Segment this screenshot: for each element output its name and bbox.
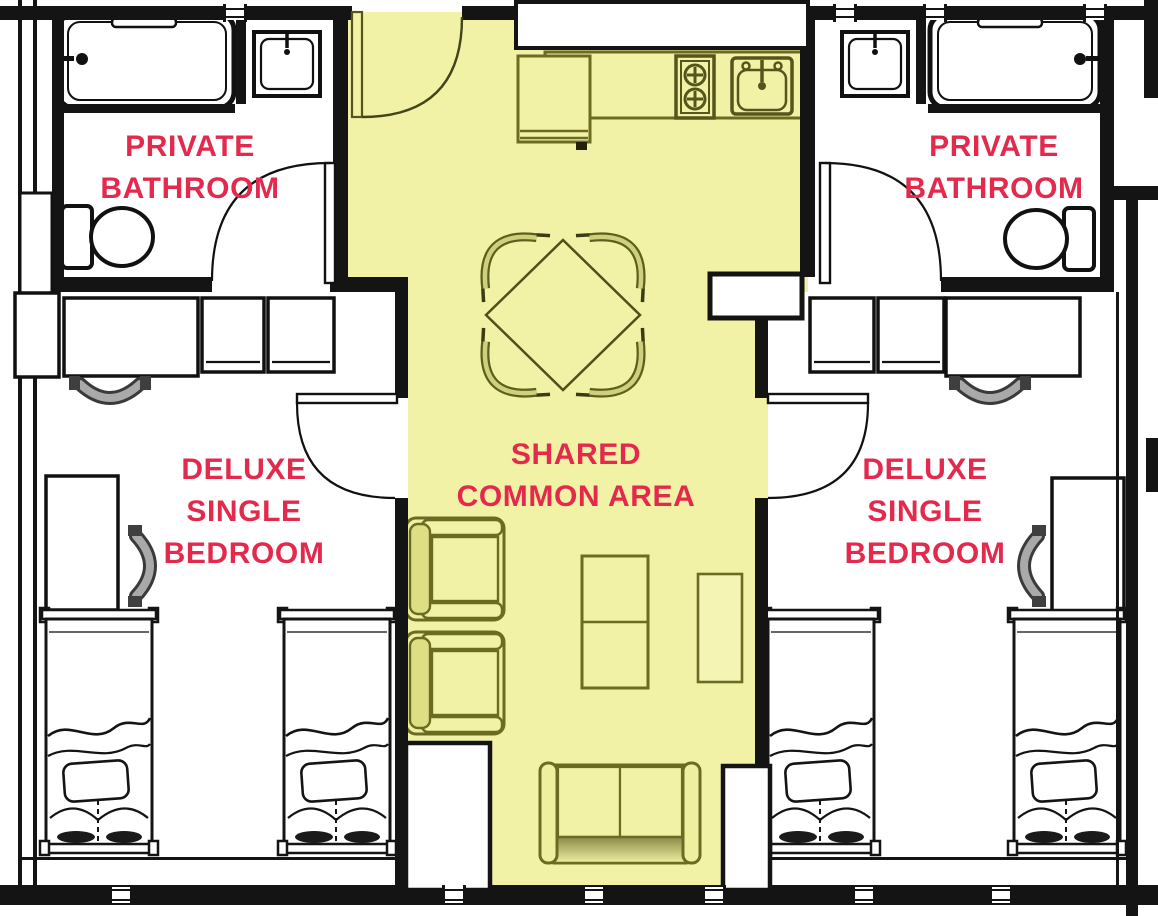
bed-icon <box>40 608 158 855</box>
bathroom-sink-icon <box>254 32 320 96</box>
bed-icon <box>278 608 396 855</box>
wardrobe-icon <box>268 298 334 372</box>
entry-niche <box>516 2 808 48</box>
stove-icon <box>676 56 714 118</box>
wardrobe-icon <box>810 298 874 372</box>
bed-icon <box>1008 608 1126 855</box>
armchair-icon <box>406 632 504 734</box>
toilet-icon <box>1005 208 1094 270</box>
desk-icon <box>46 476 118 610</box>
kitchen-sink-icon <box>732 58 792 114</box>
wardrobe-icon <box>878 298 944 372</box>
coffee-table-icon <box>582 556 648 688</box>
desk-icon <box>946 298 1080 376</box>
wall-stub <box>916 10 926 104</box>
plumbing-chase <box>15 193 59 377</box>
floor-plan: PRIVATE BATHROOM PRIVATE BATHROOM DELUXE… <box>0 0 1158 916</box>
bathtub-icon <box>55 14 235 113</box>
floor-plan-svg <box>0 0 1158 916</box>
wall-stub <box>236 10 246 104</box>
shelf <box>710 274 802 318</box>
sofa-icon <box>540 763 700 863</box>
wardrobe-icon <box>202 298 264 372</box>
refrigerator-icon <box>518 56 590 150</box>
armchair-icon <box>406 518 504 620</box>
closet <box>406 743 490 890</box>
bathroom-sink-icon <box>842 32 908 96</box>
desk-icon <box>1052 478 1124 614</box>
bed-icon <box>762 608 880 855</box>
bathtub-icon <box>928 14 1104 113</box>
desk-icon <box>64 298 198 376</box>
toilet-icon <box>62 206 153 268</box>
closet <box>723 766 770 890</box>
side-table-icon <box>698 574 742 682</box>
